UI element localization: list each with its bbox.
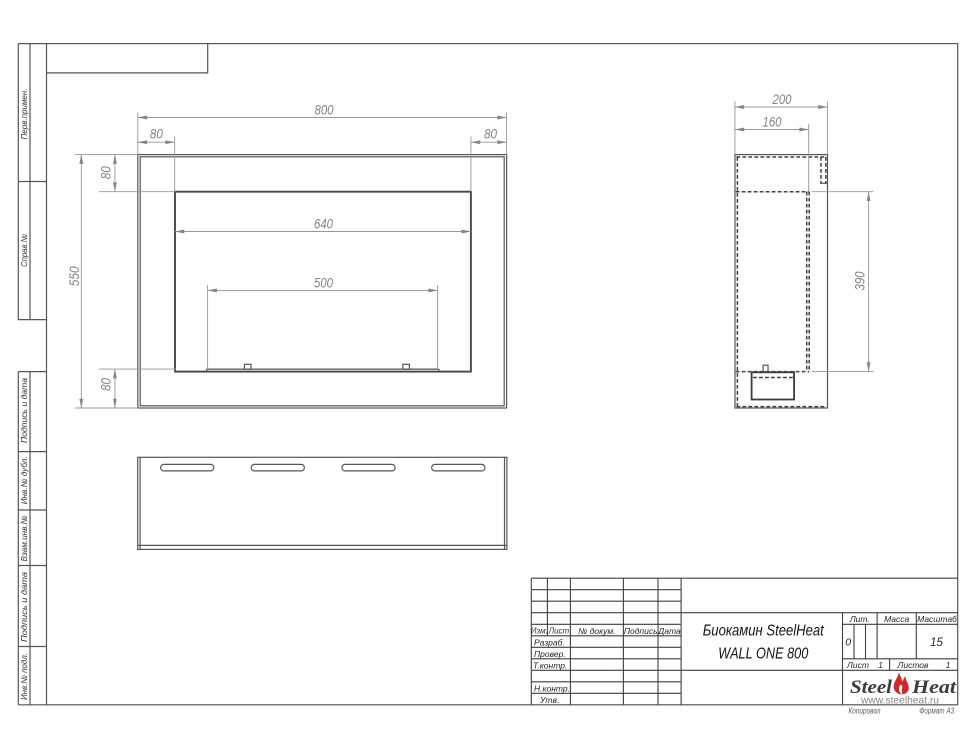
svg-text:Масштаб: Масштаб: [917, 614, 958, 624]
svg-text:www.steelheat.ru: www.steelheat.ru: [860, 695, 939, 707]
svg-text:Дата: Дата: [657, 626, 681, 636]
svg-text:550: 550: [67, 266, 82, 286]
svg-text:Взам.инв.№: Взам.инв.№: [19, 516, 29, 562]
svg-text:Лист: Лист: [548, 626, 570, 635]
svg-text:Биокамин SteelHeat: Биокамин SteelHeat: [703, 623, 824, 640]
svg-text:800: 800: [315, 103, 334, 118]
svg-text:80: 80: [98, 166, 113, 179]
svg-text:0: 0: [845, 637, 851, 649]
svg-text:Утв.: Утв.: [539, 695, 559, 705]
svg-text:80: 80: [98, 378, 113, 391]
svg-text:160: 160: [763, 115, 782, 130]
svg-text:80: 80: [484, 127, 497, 142]
svg-text:Лист: Лист: [846, 660, 869, 670]
svg-text:Изм.: Изм.: [531, 626, 548, 635]
svg-text:Копировал: Копировал: [849, 707, 881, 716]
svg-text:640: 640: [314, 216, 333, 231]
svg-text:Инв.№ подл.: Инв.№ подл.: [19, 653, 29, 700]
svg-text:№ докум.: № докум.: [578, 626, 615, 636]
svg-text:Масса: Масса: [884, 614, 909, 624]
svg-text:Справ.№: Справ.№: [19, 234, 29, 267]
svg-text:Листов: Листов: [897, 660, 930, 670]
svg-text:Формат А3: Формат А3: [919, 707, 954, 716]
svg-text:200: 200: [772, 92, 792, 107]
svg-text:Лит.: Лит.: [849, 614, 870, 624]
svg-text:Подпись и дата: Подпись и дата: [19, 378, 29, 443]
svg-text:15: 15: [930, 637, 943, 649]
svg-text:Подпись и дата: Подпись и дата: [19, 572, 29, 642]
svg-text:Провер.: Провер.: [534, 649, 566, 659]
svg-text:Инв.№ дубл.: Инв.№ дубл.: [19, 456, 29, 504]
svg-text:500: 500: [314, 275, 333, 290]
svg-text:Разраб.: Разраб.: [534, 637, 565, 647]
svg-text:Т.контр.: Т.контр.: [533, 660, 567, 670]
svg-text:80: 80: [150, 127, 163, 142]
svg-text:1: 1: [878, 660, 883, 670]
svg-text:1: 1: [946, 660, 951, 670]
svg-text:Подпись: Подпись: [624, 626, 658, 636]
svg-text:390: 390: [852, 271, 867, 290]
svg-text:WALL ONE 800: WALL ONE 800: [718, 646, 808, 663]
svg-text:Перв.примен.: Перв.примен.: [19, 89, 29, 140]
svg-text:Н.контр.: Н.контр.: [534, 683, 570, 693]
